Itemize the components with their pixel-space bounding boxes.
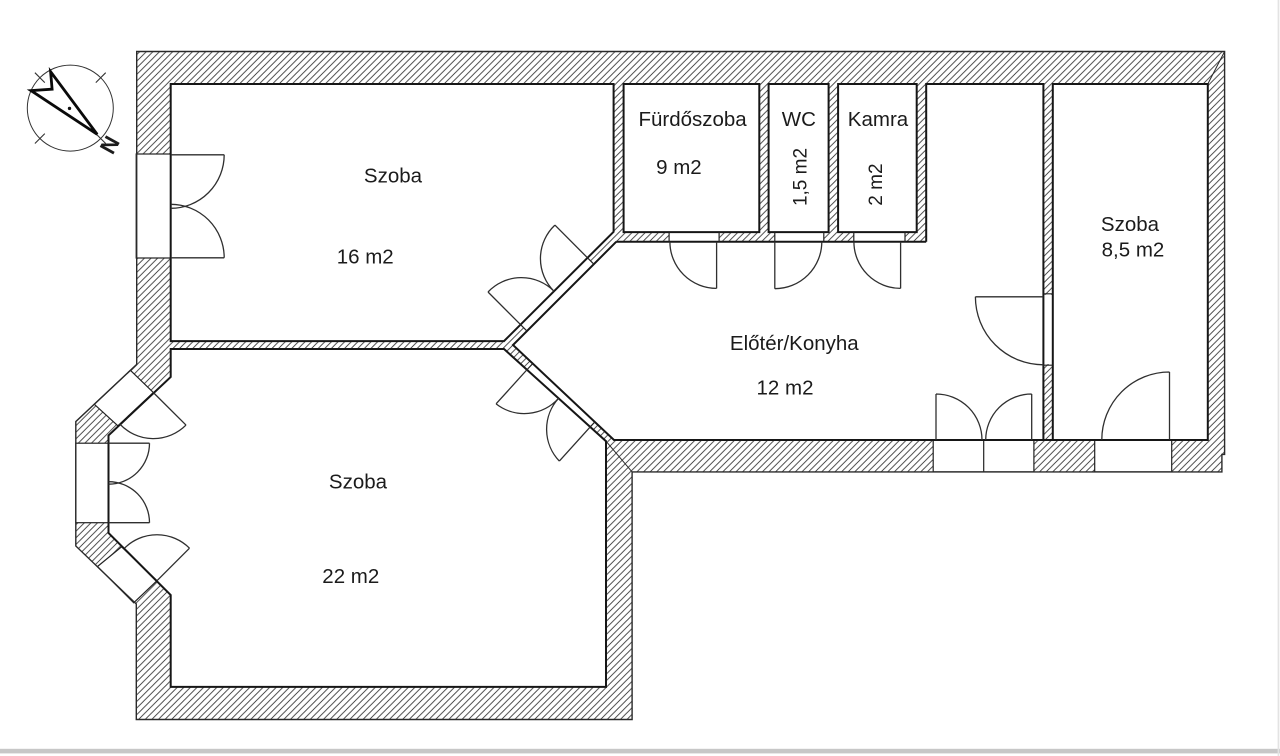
- svg-text:Szoba: Szoba: [329, 470, 388, 493]
- svg-text:1,5 m2: 1,5 m2: [790, 148, 811, 206]
- svg-text:Kamra: Kamra: [848, 108, 909, 131]
- svg-text:22 m2: 22 m2: [322, 565, 379, 588]
- svg-text:WC: WC: [782, 108, 816, 131]
- svg-text:16 m2: 16 m2: [337, 246, 394, 269]
- svg-text:Szoba: Szoba: [364, 165, 423, 188]
- svg-text:Fürdőszoba: Fürdőszoba: [638, 108, 747, 131]
- svg-text:Előtér/Konyha: Előtér/Konyha: [730, 332, 859, 355]
- svg-text:8,5 m2: 8,5 m2: [1102, 239, 1165, 262]
- svg-text:Szoba: Szoba: [1101, 213, 1160, 236]
- svg-text:12 m2: 12 m2: [757, 376, 814, 399]
- svg-text:N: N: [95, 132, 125, 158]
- svg-text:2 m2: 2 m2: [866, 163, 887, 205]
- svg-text:9 m2: 9 m2: [656, 156, 702, 179]
